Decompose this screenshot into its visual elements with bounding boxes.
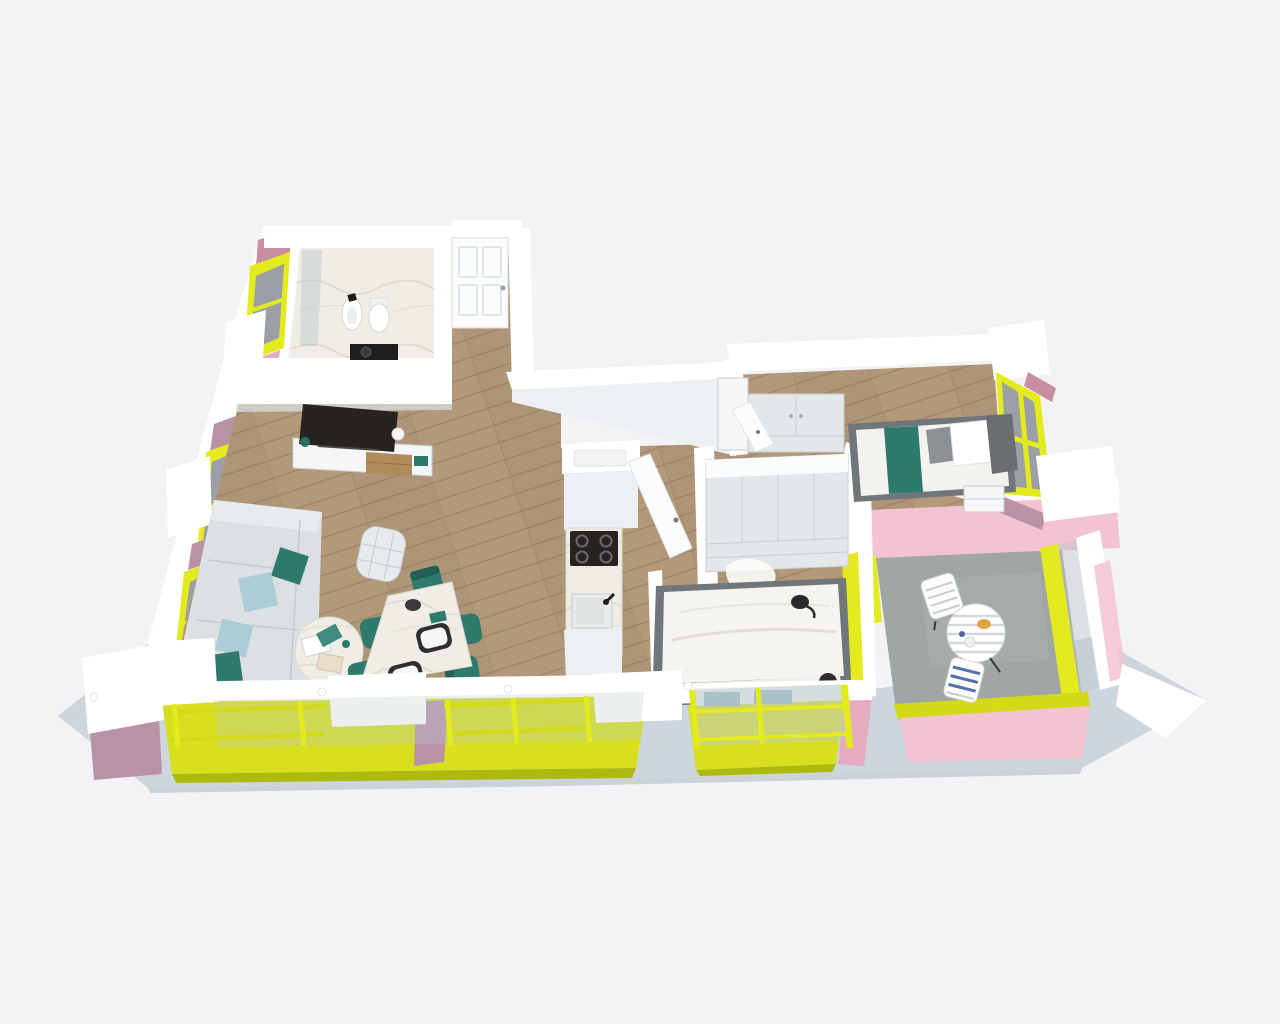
counter-end xyxy=(564,628,622,680)
tall-cabinet-face xyxy=(564,470,638,530)
cup xyxy=(342,640,350,648)
tall-cabinet-inset xyxy=(574,450,626,466)
handrail-node xyxy=(318,688,326,696)
handle xyxy=(789,414,793,418)
teal-box xyxy=(414,456,428,466)
small-plate xyxy=(965,637,975,647)
bidet-bowl xyxy=(347,307,357,325)
white-pillow xyxy=(950,420,992,466)
door-handle xyxy=(501,286,506,291)
wall-bathroom-north xyxy=(264,226,452,248)
vanity-sink xyxy=(361,347,371,357)
dark-bowl xyxy=(405,599,421,611)
double-bed-duvet xyxy=(662,584,844,684)
handrail-node xyxy=(90,693,98,701)
handle xyxy=(799,414,803,418)
terrace-corner-post xyxy=(1036,446,1120,522)
floorplan-render xyxy=(0,0,1280,1024)
handrail-node xyxy=(504,685,512,693)
toilet xyxy=(369,304,389,332)
wall-bathroom-south xyxy=(236,358,452,404)
wall-post-kids-ne xyxy=(988,320,1050,380)
magazine xyxy=(317,653,343,673)
black-vanity xyxy=(350,344,398,360)
teal-runner xyxy=(884,426,923,494)
wall-pier xyxy=(166,456,212,538)
blue-cup xyxy=(959,631,965,637)
plant-pot xyxy=(300,437,310,447)
tv xyxy=(299,404,398,452)
sink-bowl xyxy=(576,598,604,624)
ball-lamp xyxy=(392,428,404,440)
light-blue-pillow xyxy=(238,572,278,612)
snack xyxy=(977,619,991,629)
door-handle xyxy=(756,430,760,434)
entry-door xyxy=(452,238,508,328)
wall-hall-east xyxy=(508,228,534,390)
door-handle xyxy=(674,518,679,523)
floorplan-svg xyxy=(0,0,1280,1024)
handrail-node xyxy=(684,682,692,690)
